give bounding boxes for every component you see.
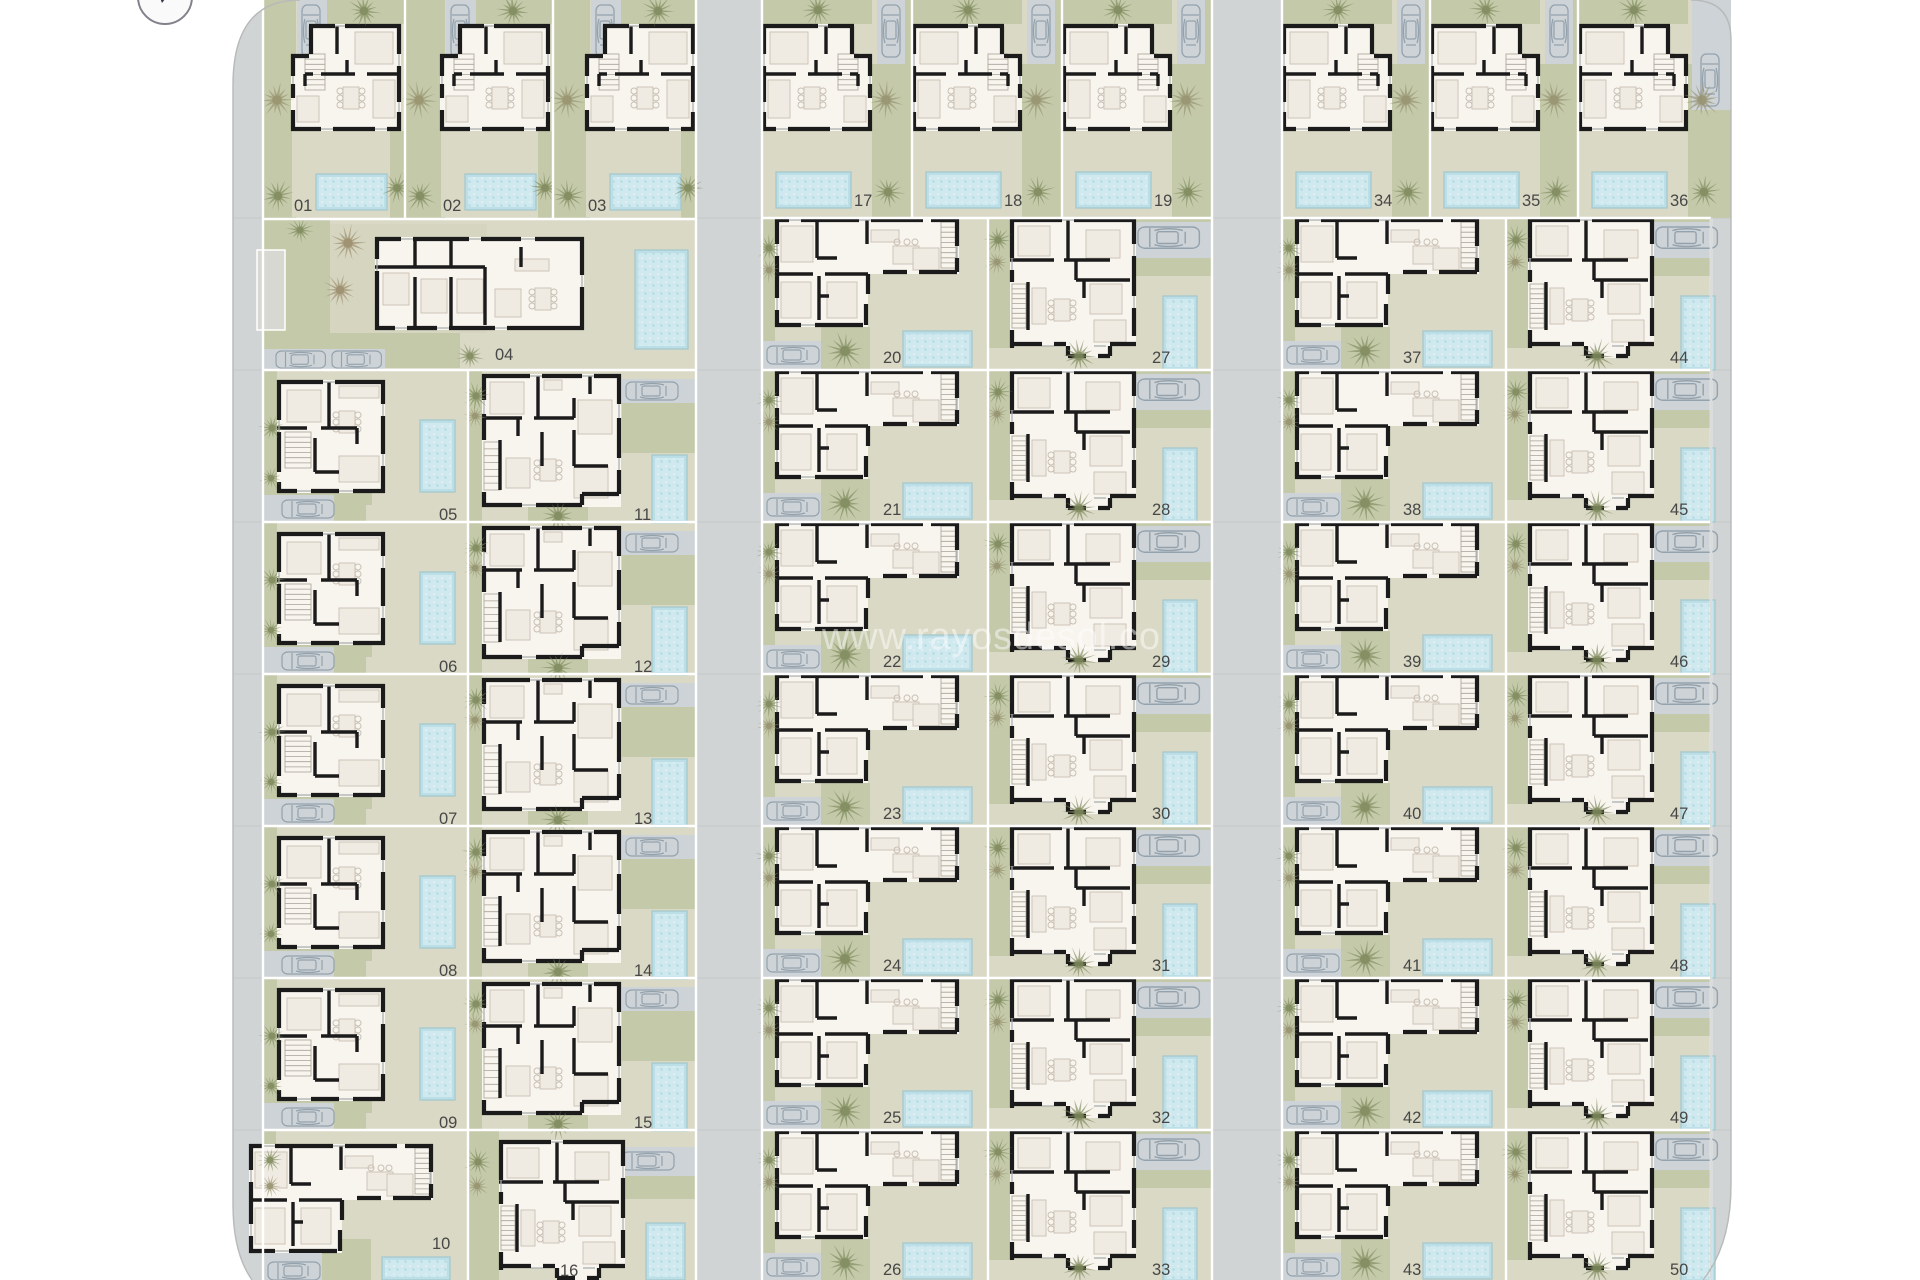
svg-text:39: 39 <box>1403 653 1421 671</box>
svg-text:49: 49 <box>1670 1109 1688 1127</box>
svg-text:42: 42 <box>1403 1109 1421 1127</box>
svg-text:37: 37 <box>1403 349 1421 367</box>
svg-text:36: 36 <box>1670 192 1688 210</box>
svg-text:31: 31 <box>1152 957 1170 975</box>
svg-text:28: 28 <box>1152 501 1170 519</box>
svg-text:30: 30 <box>1152 805 1170 823</box>
svg-text:17: 17 <box>854 192 872 210</box>
svg-text:50: 50 <box>1670 1261 1688 1279</box>
svg-text:01: 01 <box>294 197 312 215</box>
svg-text:45: 45 <box>1670 501 1688 519</box>
svg-text:40: 40 <box>1403 805 1421 823</box>
svg-text:48: 48 <box>1670 957 1688 975</box>
svg-text:41: 41 <box>1403 957 1421 975</box>
svg-text:44: 44 <box>1670 349 1688 367</box>
svg-text:25: 25 <box>883 1109 901 1127</box>
svg-text:43: 43 <box>1403 1261 1421 1279</box>
svg-text:16: 16 <box>560 1262 578 1280</box>
svg-text:47: 47 <box>1670 805 1688 823</box>
svg-text:46: 46 <box>1670 653 1688 671</box>
svg-text:02: 02 <box>443 197 461 215</box>
svg-text:www.rayosdesol.co: www.rayosdesol.co <box>821 616 1161 658</box>
svg-text:33: 33 <box>1152 1261 1170 1279</box>
svg-text:20: 20 <box>883 349 901 367</box>
svg-text:38: 38 <box>1403 501 1421 519</box>
svg-text:18: 18 <box>1004 192 1022 210</box>
svg-text:19: 19 <box>1154 192 1172 210</box>
svg-text:21: 21 <box>883 501 901 519</box>
svg-text:27: 27 <box>1152 349 1170 367</box>
svg-text:10: 10 <box>432 1235 450 1253</box>
svg-text:04: 04 <box>495 346 513 364</box>
svg-text:24: 24 <box>883 957 901 975</box>
svg-text:35: 35 <box>1522 192 1540 210</box>
svg-text:26: 26 <box>883 1261 901 1279</box>
svg-text:03: 03 <box>588 197 606 215</box>
svg-text:32: 32 <box>1152 1109 1170 1127</box>
svg-text:23: 23 <box>883 805 901 823</box>
svg-text:34: 34 <box>1374 192 1392 210</box>
